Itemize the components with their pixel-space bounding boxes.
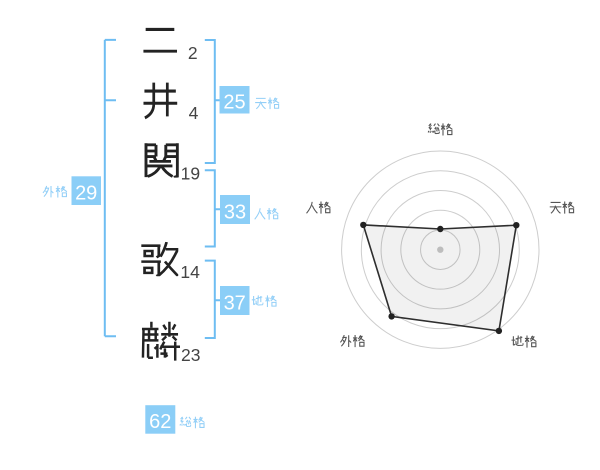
svg-text:2: 2 bbox=[188, 43, 198, 63]
svg-text:19: 19 bbox=[181, 164, 200, 184]
svg-text:23: 23 bbox=[181, 345, 200, 365]
svg-text:37: 37 bbox=[224, 292, 246, 314]
svg-text:14: 14 bbox=[180, 262, 200, 282]
svg-text:25: 25 bbox=[223, 92, 245, 114]
svg-text:33: 33 bbox=[224, 201, 246, 223]
svg-text:62: 62 bbox=[149, 411, 171, 433]
svg-text:4: 4 bbox=[189, 103, 199, 123]
svg-text:29: 29 bbox=[75, 183, 97, 205]
